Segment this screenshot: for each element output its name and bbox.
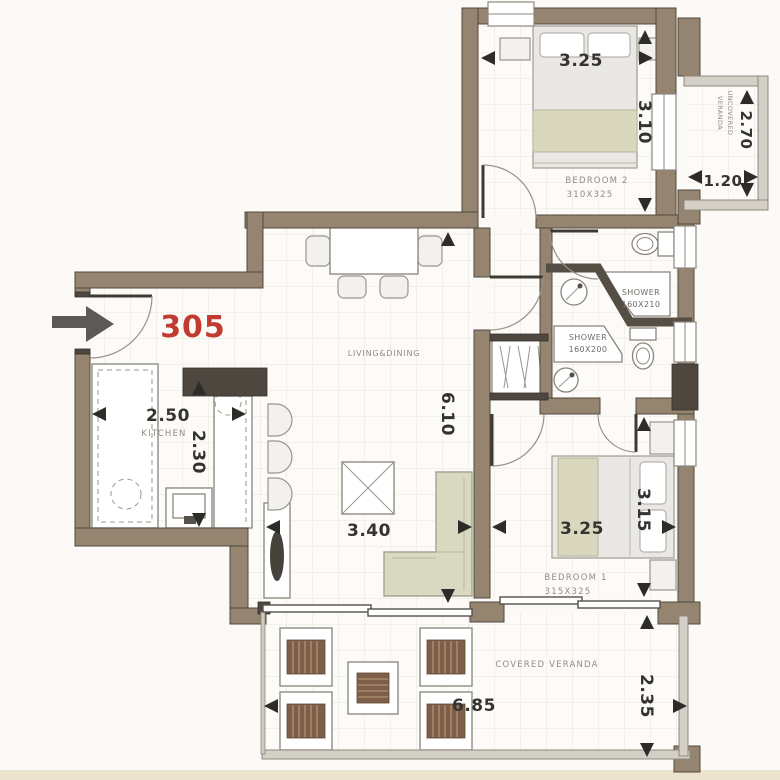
dim-bedroom1-height: 3.15 [633,488,653,532]
dim-living-height: 6.10 [437,392,457,436]
dim-covered-veranda-height: 2.35 [636,674,656,718]
dim-bedroom2-width: 3.25 [559,51,603,71]
dim-kitchen-width: 2.50 [146,406,190,426]
closet [492,340,546,394]
tv-icon [270,531,284,581]
toilet-bowl [632,234,658,255]
unit-number: 305 [160,310,226,345]
dining-chair [338,276,366,298]
veranda-table [348,662,398,714]
dining-chair [380,276,408,298]
kitchen-label: KITCHEN [141,429,186,439]
bottom-band [0,770,780,780]
uncovered-veranda-label-2: VERANDA [716,96,724,130]
shower-bottom-size: 160X200 [569,345,608,354]
shower-top-size: 160X210 [622,300,661,309]
coffee-table [342,462,394,514]
dim-bedroom1-width: 3.25 [560,519,604,539]
dim-bedroom2-height: 3.10 [634,100,654,144]
lounge-chair [420,628,472,686]
floor-plan-page: 3.25 3.10 2.70 1.20 6.10 3.40 2.50 2.30 … [0,0,780,780]
dim-uncovered-veranda-width: 1.20 [703,172,742,190]
sliding-door [368,609,472,616]
lounge-chair [280,692,332,750]
kitchen-counter [92,364,158,528]
dim-uncovered-veranda-height: 2.70 [737,110,755,149]
bedroom1-size: 315X325 [545,587,592,597]
dim-living-width: 3.40 [347,521,391,541]
floor-plan: 3.25 3.10 2.70 1.20 6.10 3.40 2.50 2.30 … [0,0,780,780]
dim-kitchen-height: 2.30 [188,430,208,474]
tv-stand [264,503,290,598]
wall-pier [678,18,700,76]
dining-table [330,226,418,274]
nightstand [500,38,530,60]
sliding-door [263,605,371,612]
toilet-bowl [633,343,654,369]
nightstand [650,560,676,590]
sliding-door [500,597,582,604]
uncovered-veranda-label-1: UNCOVERED [726,91,734,136]
nightstand [650,422,676,454]
toilet-tank [658,232,674,256]
bedroom2-label: BEDROOM 2 [565,176,628,186]
bedroom1-label: BEDROOM 1 [544,573,607,583]
shower-top-label: SHOWER [622,288,660,297]
dining-chair [306,236,330,266]
dim-covered-veranda-width: 6.85 [452,696,496,716]
living-label: LIVING&DINING [348,349,421,358]
toilet-tank [630,328,656,340]
wall-pier [470,602,504,622]
dining-chair [418,236,442,266]
lounge-chair [280,628,332,686]
sliding-door [578,601,660,608]
bedroom2-size: 310X325 [567,190,614,200]
shower-bottom-label: SHOWER [569,333,607,342]
covered-veranda-label: COVERED VERANDA [495,660,598,670]
